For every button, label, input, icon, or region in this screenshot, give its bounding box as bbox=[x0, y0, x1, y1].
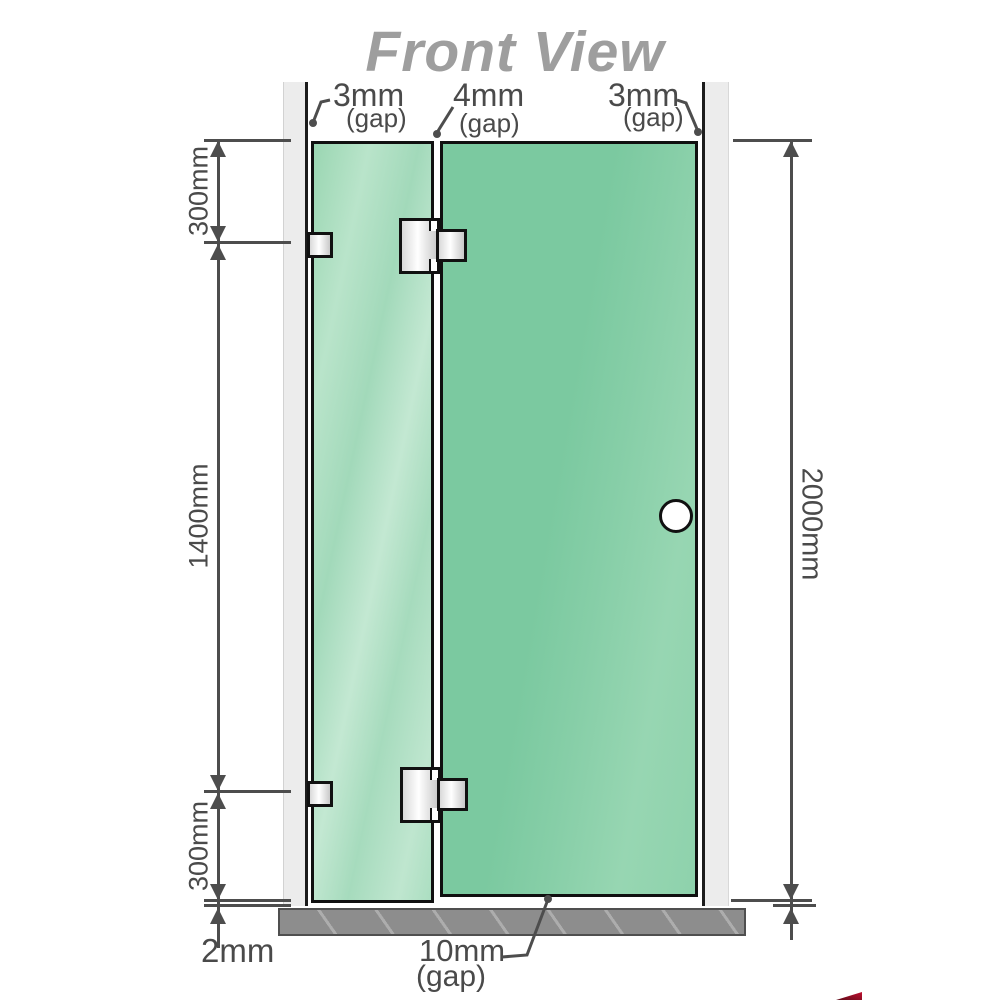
dim-label-300mm-top: 300mm bbox=[186, 146, 213, 236]
leader-dot bbox=[433, 130, 441, 138]
dim-label-300mm-bottom: 300mm bbox=[186, 801, 213, 891]
dim-cap bbox=[733, 139, 812, 142]
view-title: Front View bbox=[330, 24, 700, 81]
dim-arrow bbox=[210, 775, 226, 791]
leader-dot bbox=[694, 128, 702, 136]
dim-cap bbox=[773, 904, 816, 907]
dim-label-2mm: 2mm bbox=[201, 934, 274, 967]
dim-label-1400mm: 1400mm bbox=[186, 463, 213, 568]
dim-arrow bbox=[783, 141, 799, 157]
gap-note-bottom: (gap) bbox=[416, 962, 486, 992]
dim-label-2000mm: 2000mm bbox=[797, 468, 826, 581]
gap-note-middle: (gap) bbox=[459, 110, 520, 136]
dim-arrow bbox=[783, 908, 799, 924]
left-wall bbox=[283, 82, 308, 906]
dim-line-right bbox=[790, 140, 793, 940]
door-handle-knob bbox=[659, 499, 693, 533]
watermark-fragment bbox=[836, 992, 862, 1000]
gap-note-left: (gap) bbox=[346, 105, 407, 131]
leader-4mm-middle bbox=[438, 107, 453, 131]
dim-arrow bbox=[783, 884, 799, 900]
wall-bracket-top bbox=[307, 232, 333, 258]
dim-cap bbox=[204, 904, 291, 907]
gap-label-4mm-middle: 4mm bbox=[453, 79, 524, 111]
floor-base bbox=[278, 908, 746, 936]
dim-arrow bbox=[210, 244, 226, 260]
dim-arrow bbox=[210, 908, 226, 924]
gap-note-right: (gap) bbox=[623, 104, 684, 130]
hinge-bottom-tab bbox=[437, 778, 468, 811]
diagram-canvas: Front View 300mm 1400mm 300mm 2mm 2000mm bbox=[0, 0, 1000, 1000]
wall-bracket-bottom bbox=[307, 781, 333, 807]
leader-3mm-left bbox=[314, 100, 330, 120]
leader-dot bbox=[309, 119, 317, 127]
right-wall bbox=[702, 82, 729, 906]
dim-cap bbox=[731, 899, 812, 902]
hinge-top-tab bbox=[436, 229, 467, 262]
dim-line-left bbox=[217, 140, 220, 948]
